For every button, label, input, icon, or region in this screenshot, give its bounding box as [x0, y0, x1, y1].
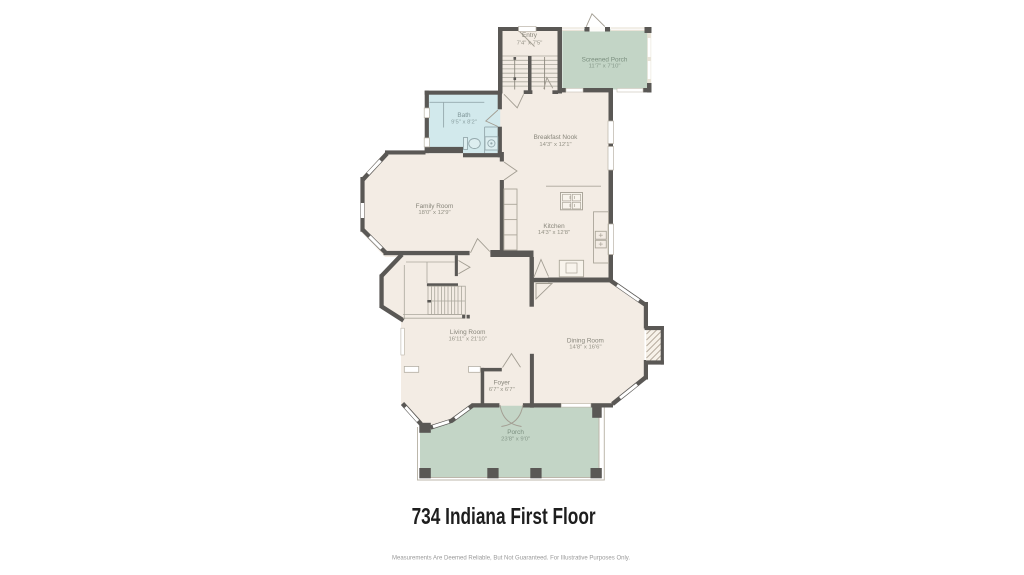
svg-text:16'11" x 21'10": 16'11" x 21'10" — [448, 336, 486, 342]
svg-text:Living Room: Living Room — [450, 329, 486, 336]
svg-text:14'3" x 12'1": 14'3" x 12'1" — [539, 142, 571, 148]
svg-text:Measurements Are Deemed Reliab: Measurements Are Deemed Reliable, But No… — [392, 555, 630, 562]
svg-text:14'3" x 12'8": 14'3" x 12'8" — [538, 230, 570, 236]
svg-text:734 Indiana First Floor: 734 Indiana First Floor — [412, 503, 596, 529]
svg-text:Kitchen: Kitchen — [543, 223, 565, 230]
svg-text:18'0" x 12'9": 18'0" x 12'9" — [418, 210, 450, 216]
svg-text:6'7" x 6'7": 6'7" x 6'7" — [489, 387, 515, 393]
svg-text:Entry: Entry — [522, 32, 538, 39]
svg-text:11'7" x 7'10": 11'7" x 7'10" — [589, 64, 621, 70]
svg-text:Porch: Porch — [507, 429, 524, 436]
svg-text:9'5" x 8'2": 9'5" x 8'2" — [451, 120, 477, 126]
svg-text:23'8" x 9'0": 23'8" x 9'0" — [501, 437, 530, 443]
svg-text:Foyer: Foyer — [494, 380, 511, 387]
svg-text:7'4" x 7'5": 7'4" x 7'5" — [517, 40, 543, 46]
svg-text:Breakfast Nook: Breakfast Nook — [534, 134, 578, 141]
svg-text:14'8" x 16'6": 14'8" x 16'6" — [569, 344, 601, 350]
svg-text:Bath: Bath — [457, 112, 471, 119]
svg-text:Screened Porch: Screened Porch — [582, 56, 628, 63]
